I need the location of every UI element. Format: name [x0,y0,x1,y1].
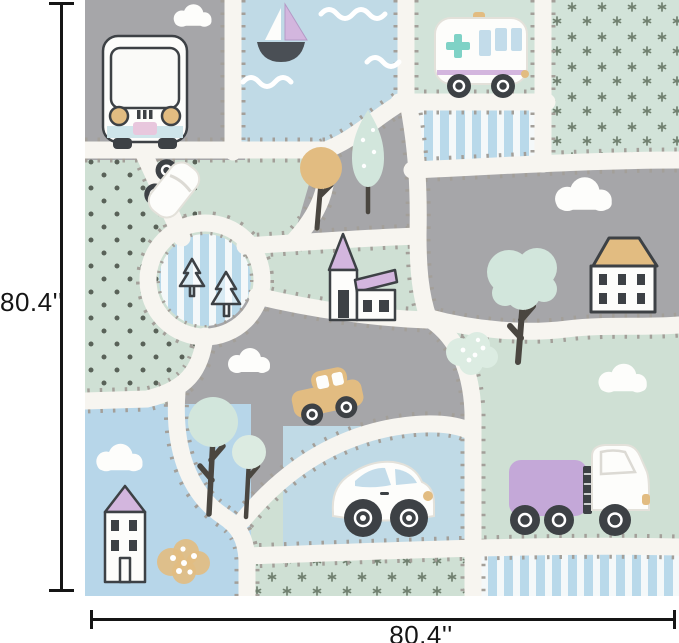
width-dimension-cap-right [673,610,676,629]
height-dimension-label: 80.4'' [0,289,57,315]
height-dimension-cap-bottom [49,589,74,592]
rug-image [85,0,679,596]
product-dimension-figure: 80.4'' 80.4'' [0,0,679,643]
width-dimension-line [90,618,676,621]
striped-patch-bottomright [471,554,679,596]
width-dimension-cap-left [90,610,93,629]
camper-plate [133,122,157,135]
camper-van [103,36,187,149]
height-dimension-cap-top [49,2,74,5]
width-dimension-label: 80.4'' [330,622,512,643]
camper-grill [137,110,153,119]
